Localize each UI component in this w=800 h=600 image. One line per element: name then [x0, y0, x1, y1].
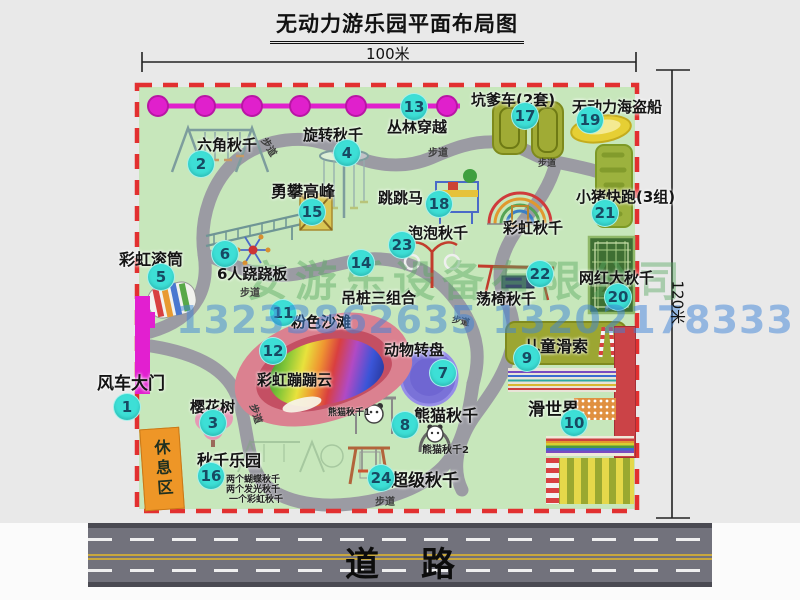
badge-24: 24	[367, 464, 395, 492]
badge-18: 18	[425, 190, 453, 218]
road-label: 道路	[88, 537, 712, 586]
windmill-gate-notch	[150, 312, 155, 328]
walkway-label-4: 步道	[240, 284, 260, 299]
badge-1: 1	[113, 393, 141, 421]
badge-15: 15	[298, 198, 326, 226]
walkway-label-7: 步道	[375, 493, 395, 508]
badge-16: 16	[197, 462, 225, 490]
walkway-label-1: 步道	[258, 134, 281, 159]
badge-19: 19	[576, 106, 604, 134]
badge-23: 23	[388, 231, 416, 259]
label-jumping-horse: 跳跳马	[378, 187, 423, 208]
swing-park-note-3: 一个彩虹秋千	[229, 492, 283, 505]
park-layout-page: { "title": "无动力游乐园平面布局图", "dimensions": …	[0, 0, 800, 600]
label-rainbow-arch-swing: 彩虹秋千	[503, 217, 563, 238]
badge-6: 6	[211, 240, 239, 268]
badge-17: 17	[511, 102, 539, 130]
rest-area-label: 休息区	[148, 438, 176, 500]
label-rainbow-cloud: 彩虹蹦蹦云	[257, 369, 332, 390]
road-band: 道路	[88, 523, 712, 587]
rest-area-block: 休息区	[139, 427, 185, 512]
badge-14: 14	[347, 249, 375, 277]
badge-8: 8	[391, 411, 419, 439]
label-panda-swing-2: 熊猫秋千2	[422, 441, 469, 456]
badge-2: 2	[187, 150, 215, 178]
label-windmill-gate: 风车大门	[97, 369, 165, 394]
watermark-phone: 13233862635 13202178333	[176, 298, 794, 342]
badge-21: 21	[591, 199, 619, 227]
height-dimension-label: 120米	[668, 281, 689, 325]
label-animal-turntable: 动物转盘	[384, 339, 444, 360]
badge-9: 9	[513, 344, 541, 372]
slide-world-candy-edge	[546, 458, 559, 504]
slide-world-lanes-lower	[546, 436, 634, 456]
slide-world-candy-slide	[546, 458, 634, 504]
label-piggy-run: 小猪快跑(3组)	[576, 186, 675, 207]
badge-3: 3	[199, 409, 227, 437]
badge-10: 10	[560, 409, 588, 437]
badge-13: 13	[400, 93, 428, 121]
badge-5: 5	[147, 263, 175, 291]
label-panda-swing: 熊猫秋千	[414, 402, 478, 426]
width-dimension-label: 100米	[366, 43, 410, 64]
badge-22: 22	[526, 260, 554, 288]
label-panda-swing-1: 熊猫秋千1	[328, 405, 370, 418]
page-title: 无动力游乐园平面布局图	[270, 8, 524, 44]
label-super-swing: 超级秋千	[391, 466, 459, 491]
walkway-label-3: 步道	[538, 156, 556, 169]
badge-4: 4	[333, 139, 361, 167]
badge-7: 7	[429, 359, 457, 387]
walkway-label-2: 步道	[428, 144, 448, 159]
label-climbing-peak: 勇攀高峰	[271, 178, 335, 202]
label-bubble-swing: 泡泡秋千	[408, 222, 468, 243]
